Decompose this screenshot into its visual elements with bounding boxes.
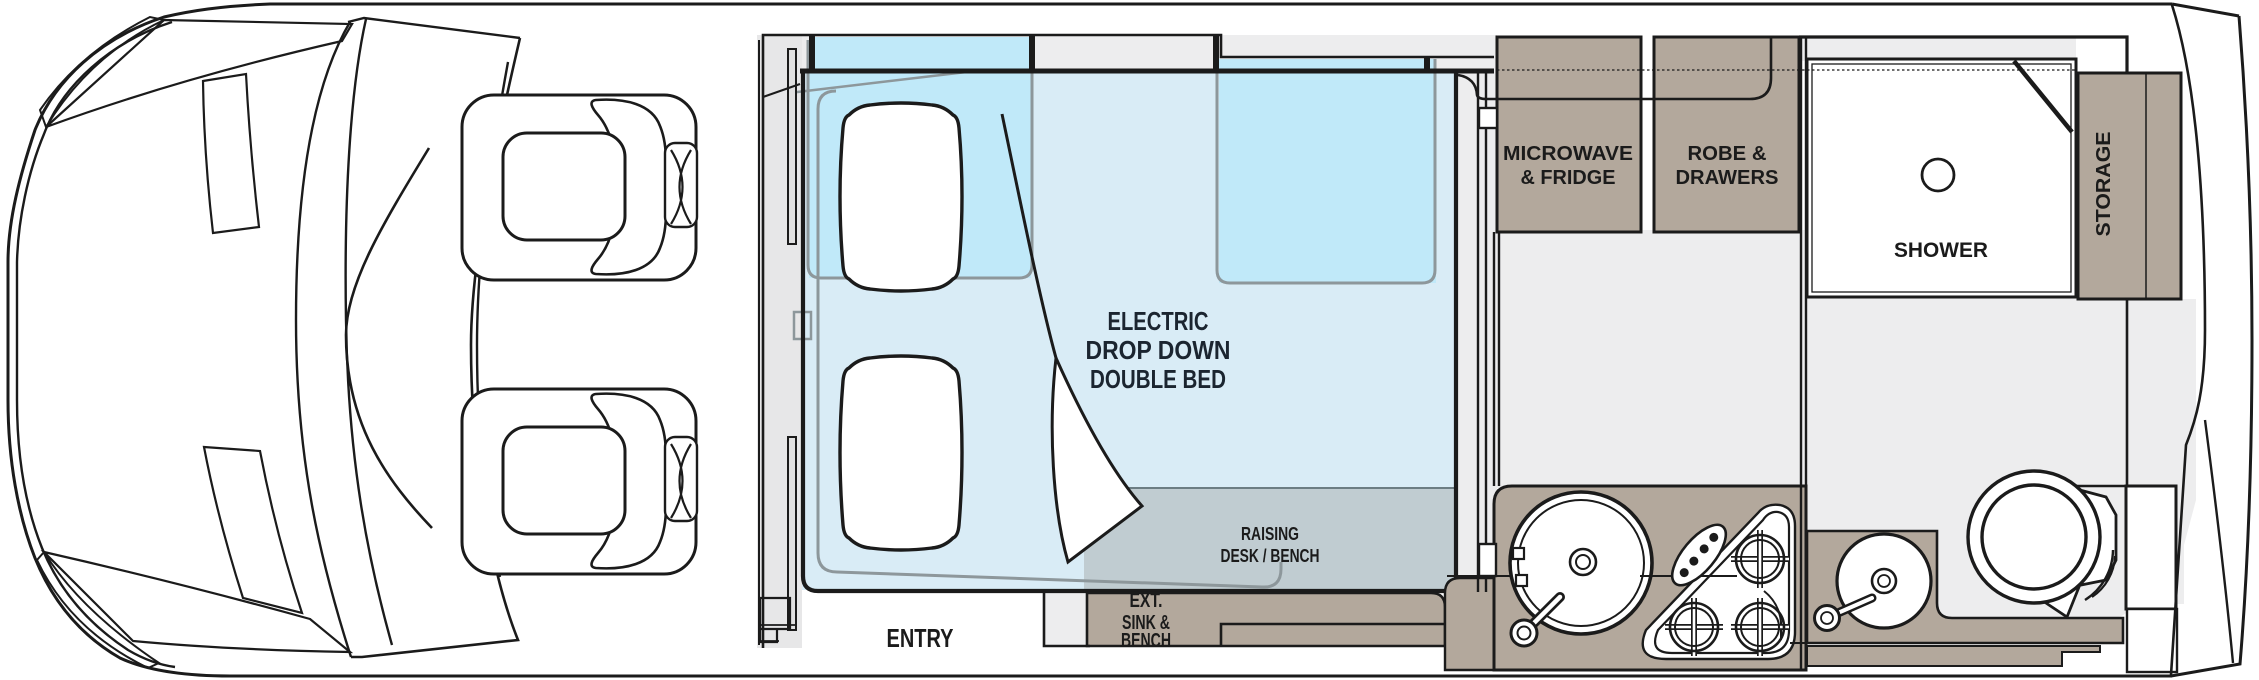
svg-text:DROP DOWN: DROP DOWN xyxy=(1086,335,1231,365)
svg-text:ENTRY: ENTRY xyxy=(887,623,954,653)
svg-text:& FRIDGE: & FRIDGE xyxy=(1521,167,1616,189)
svg-text:BENCH: BENCH xyxy=(1121,630,1171,652)
svg-text:SHOWER: SHOWER xyxy=(1894,239,1988,262)
svg-text:DESK / BENCH: DESK / BENCH xyxy=(1221,546,1320,566)
svg-text:ELECTRIC: ELECTRIC xyxy=(1108,306,1209,336)
svg-text:DOUBLE BED: DOUBLE BED xyxy=(1090,364,1226,394)
svg-text:EXT.: EXT. xyxy=(1130,590,1163,612)
svg-text:RAISING: RAISING xyxy=(1241,524,1299,544)
svg-text:MICROWAVE: MICROWAVE xyxy=(1503,143,1633,165)
svg-text:DRAWERS: DRAWERS xyxy=(1676,167,1779,189)
svg-text:ROBE &: ROBE & xyxy=(1688,143,1767,165)
svg-text:STORAGE: STORAGE xyxy=(2093,132,2115,237)
